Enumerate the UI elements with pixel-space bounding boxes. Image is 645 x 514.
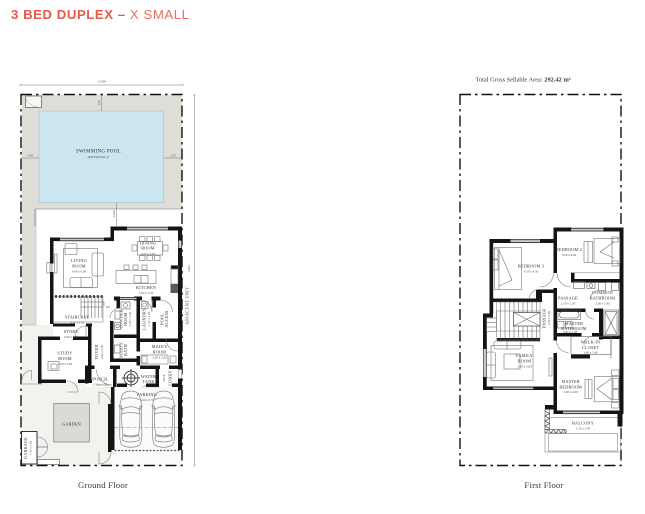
svg-text:BEDROOM 2: BEDROOM 2 [556,247,582,252]
svg-text:5.00 x 5.50: 5.00 x 5.50 [139,291,154,295]
svg-text:6.00 x 5.50: 6.00 x 5.50 [140,398,155,402]
svg-text:ADJACENT UNIT: ADJACENT UNIT [185,287,190,325]
svg-text:3 BED DUPLEX – X SMALL: 3 BED DUPLEX – X SMALL [11,7,189,22]
svg-text:LIVING: LIVING [71,258,87,263]
svg-text:1.00 x 3.90: 1.00 x 3.90 [547,310,551,325]
svg-text:ACCESS: ACCESS [164,310,169,328]
svg-text:SIDE: SIDE [162,374,166,381]
svg-text:STAIRCASE: STAIRCASE [65,315,90,320]
svg-text:Ground Floor: Ground Floor [78,480,128,490]
svg-text:ROOM: ROOM [153,350,167,355]
svg-text:ROOM: ROOM [58,356,72,361]
svg-text:15.000: 15.000 [97,80,106,84]
svg-text:UP: UP [106,305,110,309]
svg-text:WALK-IN: WALK-IN [581,340,601,345]
svg-text:PASSAGE: PASSAGE [542,308,547,328]
svg-text:First Floor: First Floor [524,480,563,490]
svg-text:2.00 x 1.70: 2.00 x 1.70 [64,335,79,339]
svg-text:1.000: 1.000 [187,265,191,273]
svg-text:Total Gross Sellable Area: 292: Total Gross Sellable Area: 292.42 m² [476,77,571,84]
svg-text:BALCONY: BALCONY [572,421,594,426]
svg-text:GARDEN: GARDEN [62,422,81,427]
svg-text:LOBBY: LOBBY [168,370,173,385]
svg-text:3.60 x 1.40: 3.60 x 1.40 [583,351,598,355]
svg-text:5.00 x 4.00: 5.00 x 4.00 [564,390,579,394]
svg-text:2.00 x 1.90: 2.00 x 1.90 [595,302,610,306]
svg-text:ROOM: ROOM [72,264,86,269]
svg-text:TANK: TANK [142,379,155,384]
svg-text:1.70 x 1.40: 1.70 x 1.40 [141,385,156,389]
svg-text:1.50 x 1.70: 1.50 x 1.70 [93,383,108,387]
svg-text:BEDROOM: BEDROOM [559,385,582,390]
svg-text:CLOSET: CLOSET [582,345,599,350]
svg-text:2.50 x 1.20: 2.50 x 1.20 [561,302,576,306]
svg-text:3.30 x 2.50: 3.30 x 2.50 [70,321,85,325]
svg-text:4.00 x 6.00: 4.00 x 6.00 [72,270,87,274]
svg-text:1.49: 1.49 [27,154,33,158]
svg-text:1.50: 1.50 [97,100,101,106]
svg-text:MAID'S: MAID'S [152,344,168,349]
svg-text:KITCHEN: KITCHEN [136,285,156,290]
svg-text:BATH: BATH [123,344,128,356]
svg-text:5.00 x 4.00: 5.00 x 4.00 [562,253,577,257]
svg-text:1.50 x 2.00: 1.50 x 2.00 [29,440,33,455]
svg-text:LAUNDRY: LAUNDRY [142,308,147,330]
svg-text:GARBAGE: GARBAGE [23,437,28,459]
svg-text:BEDROOM 3: BEDROOM 3 [518,264,544,269]
svg-text:1.000: 1.000 [112,210,116,218]
svg-text:FOYER: FOYER [94,345,99,360]
svg-text:1.70 x 2.50: 1.70 x 2.50 [147,311,151,326]
svg-text:MASTER: MASTER [561,379,579,384]
svg-text:3.00 x 3.50: 3.00 x 3.50 [58,362,73,366]
svg-text:1.52: 1.52 [170,154,176,158]
svg-text:SWIMMING POOL: SWIMMING POOL [76,149,121,154]
svg-text:4.50 x 4.50: 4.50 x 4.50 [524,270,539,274]
svg-text:1.50 x 5.00: 1.50 x 5.00 [576,427,591,431]
svg-text:1.40 x 1.45: 1.40 x 1.45 [128,311,132,326]
svg-text:(OPTIONAL)*: (OPTIONAL)* [88,155,110,159]
svg-text:BATHROOM: BATHROOM [590,296,615,301]
svg-text:STUDY: STUDY [57,351,72,356]
svg-text:2.00 x 2.60: 2.00 x 2.60 [152,356,167,360]
svg-text:2.00 x 6.00: 2.00 x 6.00 [100,344,104,359]
svg-text:3.90 x 3.60: 3.90 x 3.60 [517,365,532,369]
svg-text:3.60 x 1.60: 3.60 x 1.60 [563,330,578,334]
svg-text:ROOM: ROOM [141,246,155,251]
svg-text:PASSAGE: PASSAGE [558,296,578,301]
